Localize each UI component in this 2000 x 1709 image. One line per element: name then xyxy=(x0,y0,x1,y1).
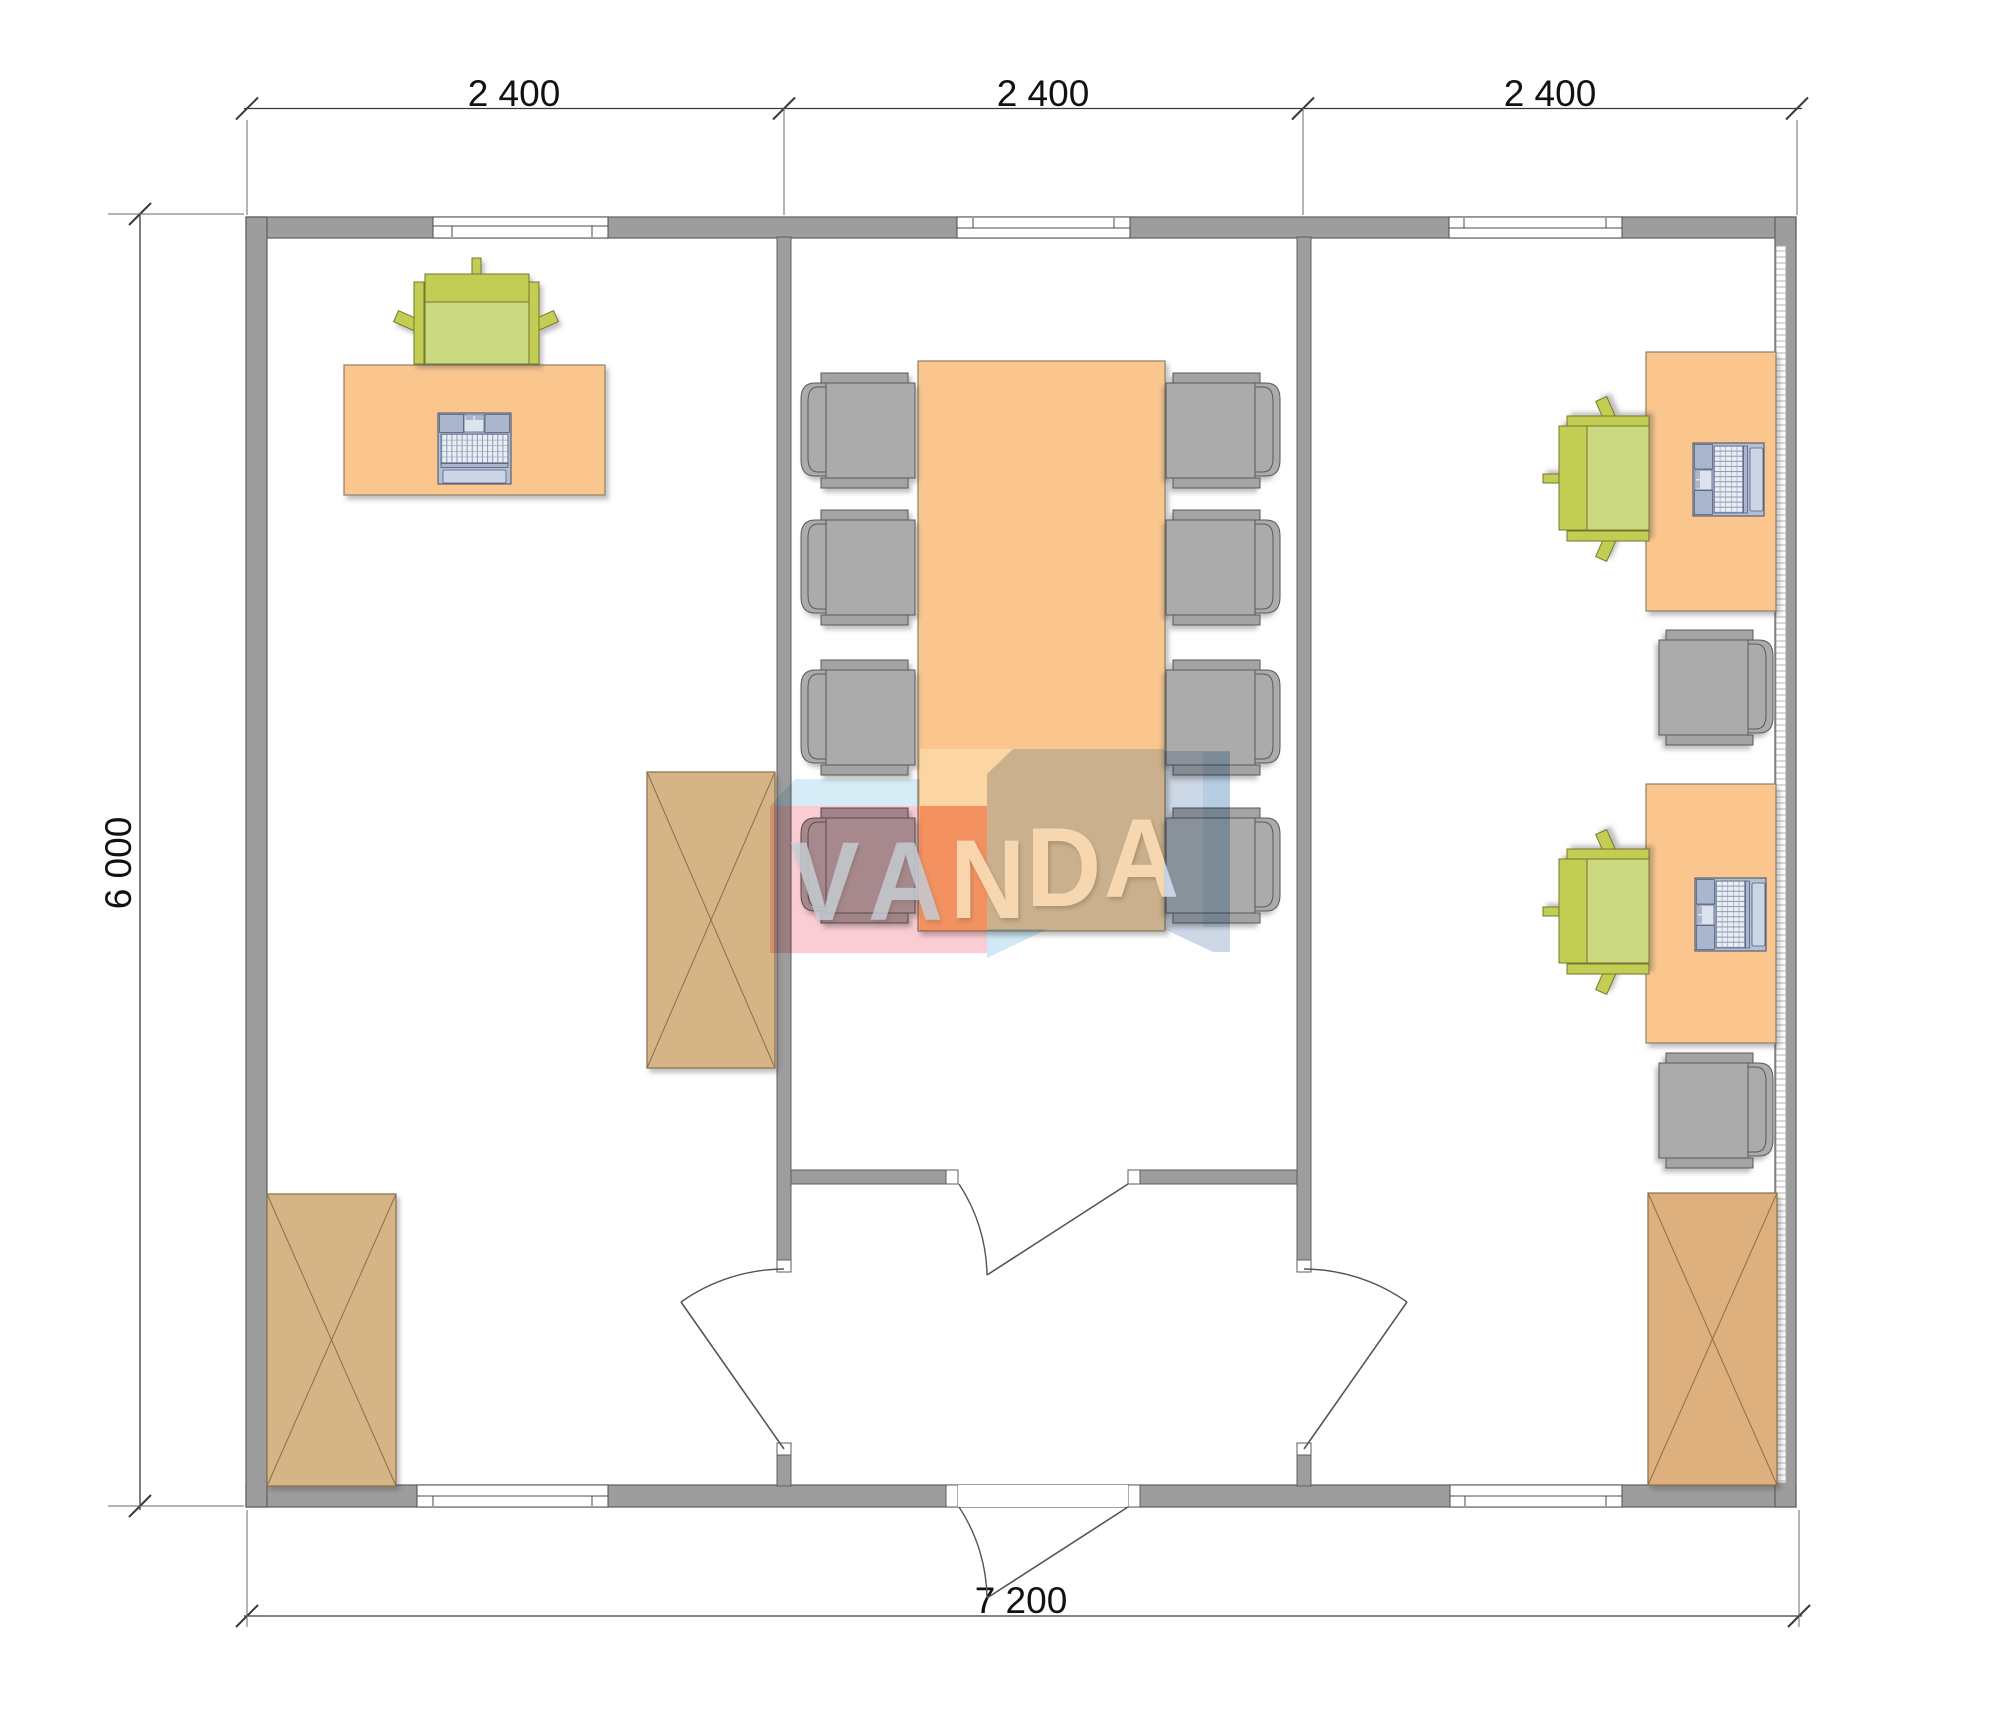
svg-text:N: N xyxy=(950,817,1025,942)
svg-text:2 400: 2 400 xyxy=(468,73,561,114)
svg-text:2 400: 2 400 xyxy=(997,73,1090,114)
svg-text:A: A xyxy=(868,819,943,944)
svg-text:2 400: 2 400 xyxy=(1504,73,1597,114)
svg-text:V: V xyxy=(790,819,859,944)
svg-text:6 000: 6 000 xyxy=(98,817,139,910)
svg-text:D: D xyxy=(1026,805,1101,930)
svg-text:7 200: 7 200 xyxy=(975,1580,1068,1621)
